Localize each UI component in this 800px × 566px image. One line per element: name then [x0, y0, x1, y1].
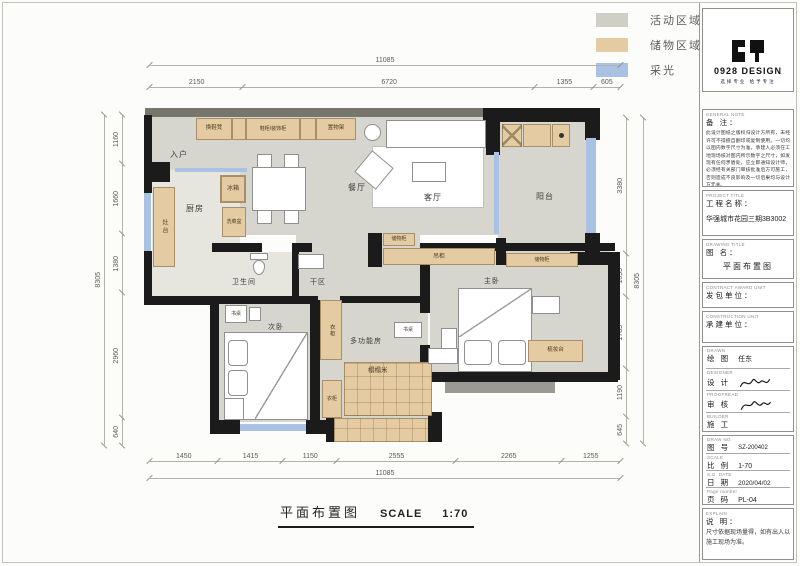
bedroom2-window	[240, 424, 308, 431]
balcony-sink	[552, 124, 570, 147]
section-label: 施 工	[707, 420, 730, 431]
wardrobe: 衣柜	[320, 300, 342, 360]
logo-section: 0928 DESIGN 选择专业 给予专注	[702, 8, 794, 92]
wall	[144, 296, 218, 305]
wall	[340, 296, 428, 303]
drawing-name: 平面布置图	[706, 261, 790, 272]
date-value: 2020/04/02	[738, 480, 771, 487]
stove-counter: 灶台	[153, 187, 175, 267]
furniture-label: 衣柜	[323, 381, 341, 417]
room-label-living: 客厅	[424, 192, 442, 203]
balcony-door	[494, 152, 499, 234]
designer-row: DESIGNER 设 计	[706, 368, 790, 390]
section-label: 设 计	[707, 378, 730, 389]
bedroom2-desk: 书桌	[225, 305, 247, 323]
furniture-label: 洗菜盆	[223, 208, 245, 236]
shoe-bench: 换鞋凳	[196, 118, 232, 140]
wall	[292, 243, 312, 252]
section-label: 比 例	[707, 461, 730, 472]
wall	[145, 108, 483, 117]
wall	[212, 243, 262, 252]
furniture-label: 梳妆台	[529, 341, 582, 361]
wall	[144, 115, 152, 167]
section-label: 绘 图	[707, 354, 730, 365]
toilet	[250, 253, 268, 260]
proofread-row: PROOFREAD 审 核	[706, 390, 790, 412]
dining-chair	[257, 210, 272, 224]
wall	[483, 108, 600, 122]
furniture-label: 衣柜	[321, 301, 341, 359]
wall	[310, 300, 320, 422]
coffee-table	[412, 162, 446, 182]
dining-chair	[257, 154, 272, 168]
fridge: 冰箱	[220, 175, 246, 203]
page-value: PL-04	[738, 497, 757, 504]
wall	[428, 412, 442, 442]
master-storage-cabinet: 储物柜	[506, 253, 578, 267]
furniture-label: 鞋柜/装饰柜	[247, 119, 299, 139]
furniture-label: 储物柜	[384, 234, 414, 245]
project-name: 华强城市花园三期3B3002	[706, 214, 790, 224]
scale-value: 1-70	[738, 463, 752, 470]
section-label: 图 号	[707, 443, 730, 454]
entry-threshold	[175, 168, 247, 172]
furniture-label: 储物柜	[507, 254, 577, 266]
construction-unit-section: CONSTRUCTION UNIT 承建单位：	[702, 311, 794, 343]
room-label-kitchen: 厨房	[186, 203, 204, 214]
contract-award-section: CONTRACT AWARD UNIT 发包单位：	[702, 282, 794, 308]
drawn-by: 任东	[738, 354, 752, 364]
drawing-title-section: DRAWING TITLE 图 名： 平面布置图	[702, 239, 794, 279]
wardrobe: 衣柜	[322, 380, 342, 418]
bay-window-sill	[445, 382, 555, 393]
desk-chair	[249, 307, 261, 321]
room-label-dry-area: 干区	[310, 277, 326, 287]
wall	[210, 298, 219, 430]
page-row: Page number 页 码PL-04	[706, 487, 790, 504]
room-label-dining: 餐厅	[348, 182, 366, 193]
entry-cabinet	[232, 118, 246, 140]
side-table	[428, 348, 458, 364]
room-label-balcony: 阳台	[536, 191, 554, 202]
general-note-text: 此设计图纸之版权归设计方所有，未经许可不得擅自翻印或复制使用。一切均以图内数字尺…	[706, 130, 790, 187]
veg-sink: 洗菜盆	[222, 207, 246, 237]
master-stool	[532, 296, 560, 314]
shoe-cabinet: 鞋柜/装饰柜	[246, 118, 300, 140]
title-block: 0928 DESIGN 选择专业 给予专注 GENERAL NOTE 备 注： …	[702, 8, 794, 563]
furniture-label: 冰箱	[222, 177, 244, 201]
company-name: 0928 DESIGN	[714, 66, 782, 76]
drawing-sheet: 活动区域 储物区域 采光 11085 2150 6720 1355 605 14…	[0, 0, 800, 566]
dining-chair	[284, 154, 299, 168]
general-note-section: GENERAL NOTE 备 注： 此设计图纸之版权归设计方所有，未经许可不得擅…	[702, 109, 794, 187]
caption-scale-label: SCALE	[380, 508, 422, 520]
wall	[428, 372, 618, 382]
furniture-label: 书桌	[395, 323, 421, 337]
floor-plan: 换鞋凳 鞋柜/装饰柜 置物架 灶台 冰箱 洗菜盆 储物柜 吊柜 储物柜	[0, 0, 700, 566]
explain-section: EXPLAIN 说 明： 尺寸依据现场量得，如有出入以施工现场为准。	[702, 508, 794, 560]
caption-title: 平面布置图	[280, 502, 360, 521]
room-label-master: 主卧	[484, 276, 500, 286]
washing-machine	[502, 124, 522, 147]
company-tagline: 选择专业 给予专注	[720, 79, 775, 85]
storage-cabinet: 储物柜	[383, 233, 415, 246]
section-label: 页 码	[707, 495, 730, 505]
staff-section: DRAWN 绘 图任东 DESIGNER 设 计 PROOFREAD 审 核 B…	[702, 346, 794, 432]
furniture-label: 吊柜	[384, 249, 494, 264]
pillow	[498, 340, 526, 365]
proofread-signature	[738, 398, 772, 412]
bedside-shelf	[224, 398, 244, 420]
dresser: 梳妆台	[528, 340, 583, 362]
section-label: 图 名：	[706, 248, 790, 259]
dining-chair	[284, 210, 299, 224]
storage-shelf: 置物架	[316, 118, 356, 140]
entry-column	[150, 162, 170, 182]
section-label: 审 核	[707, 400, 730, 411]
room-label-multi-room: 多功能房	[350, 336, 382, 346]
bed-blanket-line	[459, 289, 531, 337]
section-label: 说 明：	[706, 517, 790, 528]
entry-cabinet	[300, 118, 316, 140]
dry-area-sink	[298, 254, 324, 269]
builder-row: BUILDER 施 工	[706, 412, 790, 431]
sofa	[386, 120, 486, 148]
draw-no-value: SZ-200402	[738, 445, 768, 451]
wall	[210, 420, 240, 434]
date-row: S.G. DATE 日 期2020/04/02	[706, 470, 790, 487]
scale-row: SCALE 比 例1-70	[706, 453, 790, 470]
section-label: 发包单位：	[706, 291, 790, 302]
tv-cabinet: 吊柜	[383, 248, 495, 265]
wall	[496, 238, 506, 265]
tatami	[344, 362, 432, 416]
caption-scale-value: 1:70	[442, 508, 468, 520]
dining-table	[252, 167, 306, 211]
pillow	[228, 370, 248, 396]
room-label-bedroom2: 次卧	[268, 322, 284, 332]
faucet-icon	[559, 133, 564, 138]
room-label-bathroom: 卫生间	[232, 277, 256, 287]
pillow	[228, 340, 248, 366]
drawn-row: DRAWN 绘 图任东	[706, 347, 790, 368]
furniture-label: 书桌	[226, 306, 246, 322]
wall	[608, 262, 620, 380]
wall	[486, 117, 500, 155]
balcony-counter	[523, 124, 551, 147]
furniture-label: 灶台	[154, 188, 174, 266]
pillow	[464, 340, 492, 365]
wall	[212, 296, 318, 304]
section-label: 工程名称：	[706, 199, 790, 210]
draw-no-row: DRAW NO. 图 号SZ-200402	[706, 436, 790, 453]
furniture-label: 置物架	[317, 119, 355, 139]
balcony-window	[586, 138, 596, 234]
company-logo-icon	[731, 39, 765, 63]
wall	[585, 108, 600, 140]
wall	[368, 233, 382, 267]
designer-signature	[738, 376, 772, 390]
bed-blanket-line	[255, 333, 307, 419]
explain-text: 尺寸依据现场量得，如有出入以施工现场为准。	[706, 529, 790, 548]
furniture-label: 换鞋凳	[197, 119, 231, 139]
side-table-round	[364, 124, 381, 141]
section-label: 承建单位：	[706, 320, 790, 331]
multi-desk: 书桌	[394, 322, 422, 338]
room-label-entry: 入户	[170, 149, 188, 160]
section-label: 备 注：	[706, 118, 790, 129]
bay-storage	[334, 418, 430, 442]
meta-section: DRAW NO. 图 号SZ-200402 SCALE 比 例1-70 S.G.…	[702, 435, 794, 505]
kitchen-window	[144, 193, 151, 253]
project-title-section: PROJECT TITLE 工程名称： 华强城市花园三期3B3002	[702, 190, 794, 236]
section-label: 日 期	[707, 478, 730, 489]
furniture-label: 榻榻米	[368, 368, 388, 375]
drawing-caption: 平面布置图 SCALE 1:70	[278, 502, 474, 528]
